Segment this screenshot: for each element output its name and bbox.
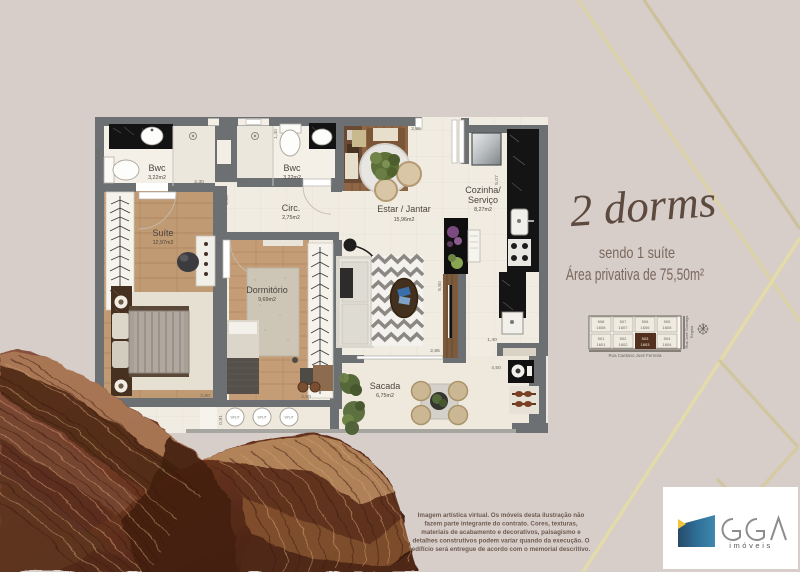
svg-text:1,40: 1,40	[273, 129, 279, 139]
svg-text:2,85: 2,85	[430, 348, 440, 354]
svg-text:9,69m2: 9,69m2	[258, 297, 276, 303]
svg-text:Sacada: Sacada	[370, 381, 401, 391]
svg-text:SPLIT: SPLIT	[230, 416, 239, 420]
svg-text:6,75m2: 6,75m2	[376, 393, 394, 399]
svg-text:2,30: 2,30	[194, 179, 204, 185]
svg-text:Cozinha/: Cozinha/	[465, 185, 501, 195]
svg-text:Rua Caetano José Ferreira: Rua Caetano José Ferreira	[609, 353, 663, 358]
svg-text:fazem parte integrante do cont: fazem parte integrante do contrato. Core…	[424, 521, 577, 528]
svg-text:Dormitório: Dormitório	[246, 285, 288, 295]
svg-text:SPLIT: SPLIT	[284, 416, 293, 420]
svg-text:0,91: 0,91	[218, 415, 224, 425]
svg-text:15,96m2: 15,96m2	[394, 217, 415, 223]
svg-text:1605: 1605	[663, 325, 673, 330]
svg-text:4,50: 4,50	[491, 365, 501, 371]
svg-text:502: 502	[620, 336, 627, 341]
svg-text:1604: 1604	[663, 342, 673, 347]
svg-text:2,80: 2,80	[200, 393, 210, 399]
svg-text:Bwc: Bwc	[283, 163, 301, 173]
svg-text:501: 501	[598, 336, 605, 341]
svg-text:edifício será entregue de acor: edifício será entregue de acordo com o m…	[412, 546, 591, 553]
svg-text:detalhes construtivos podem va: detalhes construtivos podem variar quand…	[412, 538, 589, 545]
svg-text:sendo 1 suíte: sendo 1 suíte	[599, 245, 675, 262]
svg-text:1603: 1603	[641, 342, 651, 347]
svg-text:1602: 1602	[619, 342, 629, 347]
svg-text:materiais de acabamento e deco: materiais de acabamento e decorativos, p…	[421, 529, 581, 536]
svg-text:Área privativa de 75,50m²: Área privativa de 75,50m²	[566, 265, 704, 285]
svg-text:505: 505	[664, 319, 671, 324]
svg-text:12,97m2: 12,97m2	[153, 240, 174, 246]
svg-text:Circ.: Circ.	[282, 203, 301, 213]
svg-text:2,75m2: 2,75m2	[282, 215, 300, 221]
svg-text:3,41: 3,41	[95, 150, 101, 160]
svg-text:1,40: 1,40	[487, 337, 497, 343]
svg-text:1607: 1607	[619, 325, 629, 330]
svg-text:Serviço: Serviço	[468, 195, 498, 205]
svg-text:503: 503	[642, 336, 649, 341]
svg-text:1601: 1601	[597, 342, 607, 347]
svg-text:Bwc: Bwc	[148, 163, 166, 173]
svg-text:1608: 1608	[597, 325, 607, 330]
svg-text:3,22m2: 3,22m2	[283, 175, 301, 181]
svg-text:1,00: 1,00	[224, 195, 230, 205]
svg-text:Rua José Gonzaga: Rua José Gonzaga	[685, 315, 689, 349]
svg-text:2,86: 2,86	[411, 126, 421, 132]
svg-text:imóveis: imóveis	[729, 541, 773, 550]
svg-text:3,80: 3,80	[340, 373, 346, 383]
svg-text:5,50: 5,50	[437, 281, 443, 291]
svg-text:Suíte: Suíte	[152, 228, 173, 238]
svg-text:SPLIT: SPLIT	[257, 416, 266, 420]
svg-text:504: 504	[664, 336, 671, 341]
svg-text:1606: 1606	[641, 325, 651, 330]
svg-text:506: 506	[642, 319, 649, 324]
svg-text:3,22m2: 3,22m2	[148, 175, 166, 181]
svg-text:8,27m2: 8,27m2	[474, 207, 492, 213]
svg-text:Regina: Regina	[690, 325, 694, 338]
svg-text:Imagem artística virtual. Os m: Imagem artística virtual. Os móveis dest…	[418, 512, 585, 519]
svg-text:Estar / Jantar: Estar / Jantar	[377, 204, 431, 214]
svg-text:2,30: 2,30	[238, 179, 248, 185]
svg-text:508: 508	[598, 319, 605, 324]
svg-text:5,07: 5,07	[494, 175, 500, 185]
svg-text:2,60: 2,60	[301, 394, 311, 400]
svg-text:2 dorms: 2 dorms	[568, 176, 717, 236]
svg-text:507: 507	[620, 319, 627, 324]
